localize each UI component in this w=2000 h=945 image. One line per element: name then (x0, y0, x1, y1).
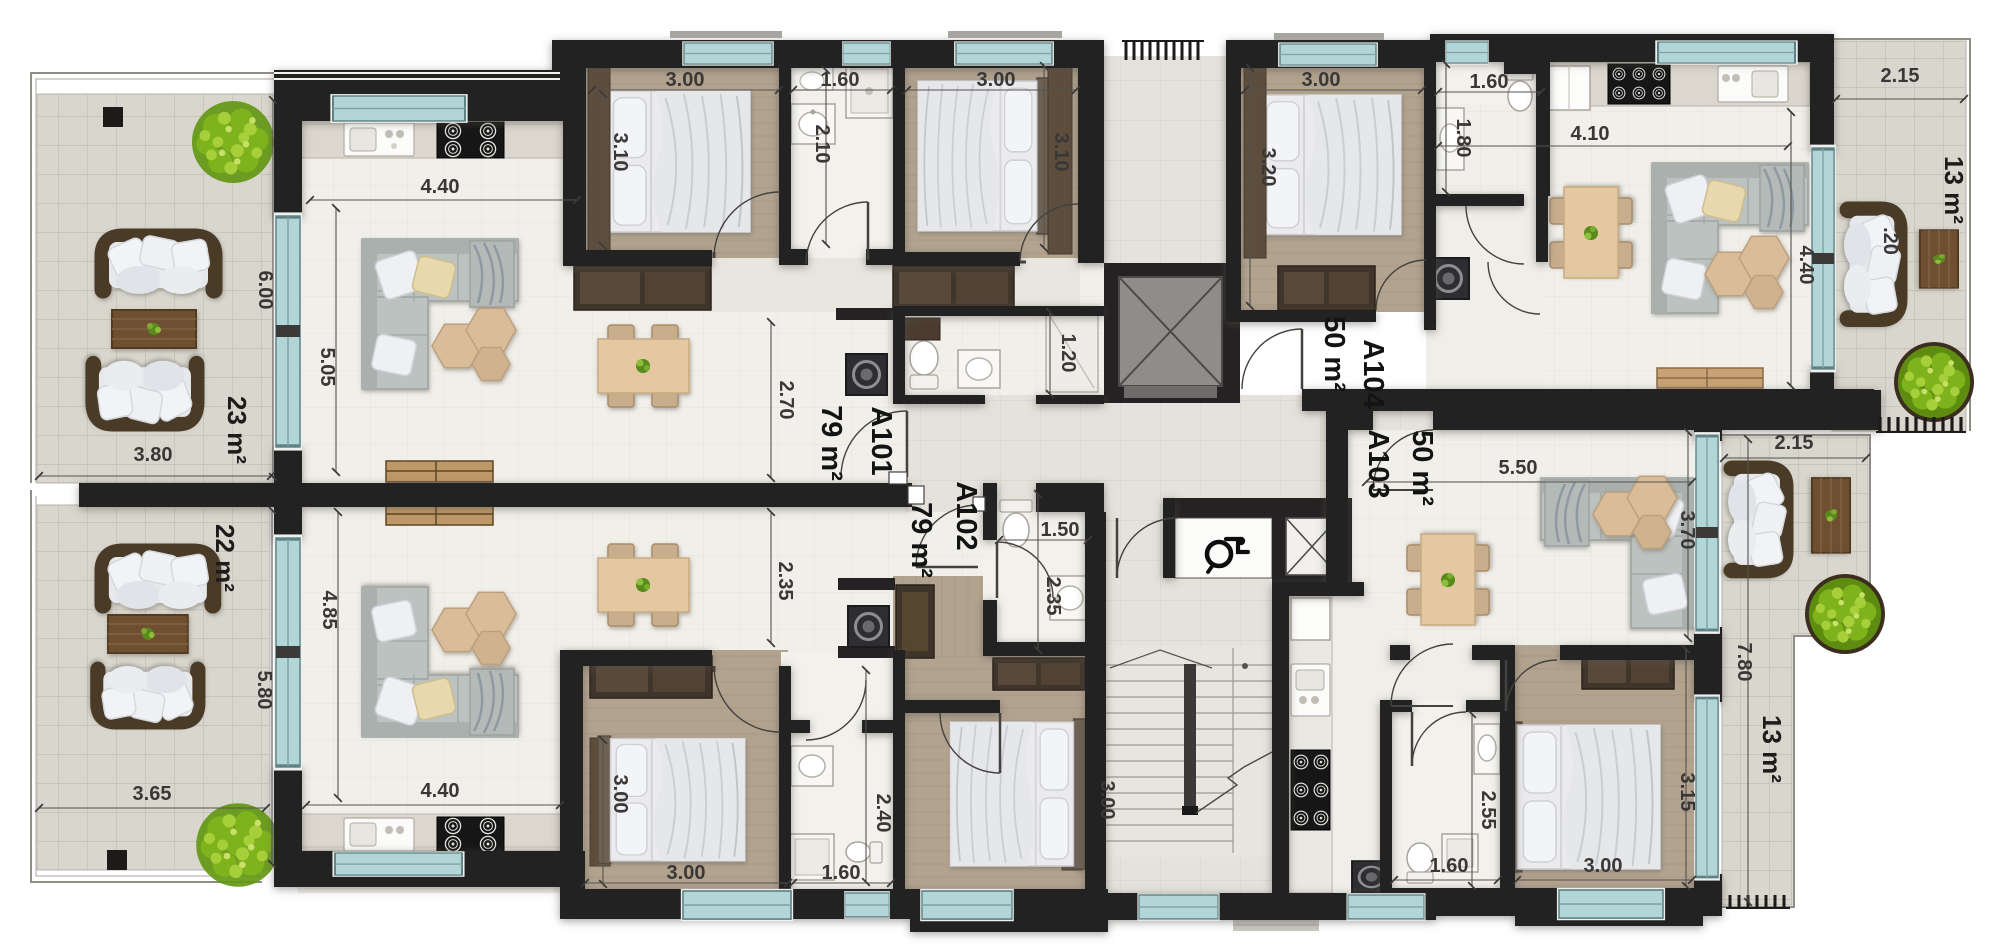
svg-text:22 m²: 22 m² (210, 524, 240, 592)
svg-text:3.00: 3.00 (667, 862, 706, 884)
svg-text:4.40: 4.40 (421, 780, 460, 802)
svg-text:3.00: 3.00 (1302, 69, 1341, 91)
svg-text:2.70: 2.70 (775, 381, 797, 420)
svg-text:.20: .20 (1879, 227, 1901, 255)
svg-text:2.40: 2.40 (872, 794, 894, 833)
svg-text:79 m²: 79 m² (815, 405, 847, 481)
svg-text:3.65: 3.65 (133, 783, 172, 805)
svg-text:79 m²: 79 m² (905, 502, 937, 578)
svg-text:5.05: 5.05 (316, 348, 338, 387)
svg-text:3.00: 3.00 (609, 775, 631, 814)
svg-text:4.10: 4.10 (1571, 123, 1610, 145)
svg-text:1.60: 1.60 (1470, 71, 1509, 93)
svg-text:A102: A102 (950, 481, 982, 550)
svg-text:3.00: 3.00 (666, 69, 705, 91)
svg-text:5.80: 5.80 (253, 671, 275, 710)
svg-text:7.80: 7.80 (1733, 643, 1755, 682)
svg-text:2.35: 2.35 (774, 562, 796, 601)
svg-text:1.20: 1.20 (1057, 334, 1079, 373)
svg-text:2.10: 2.10 (811, 125, 833, 164)
svg-text:2.35: 2.35 (1042, 577, 1064, 616)
svg-text:3.15: 3.15 (1676, 773, 1698, 812)
svg-text:13 m²: 13 m² (1939, 156, 1969, 224)
svg-text:3.70: 3.70 (1676, 511, 1698, 550)
svg-text:A101: A101 (865, 406, 897, 475)
svg-text:1.50: 1.50 (1041, 519, 1080, 541)
svg-text:2.15: 2.15 (1881, 65, 1920, 87)
svg-text:3.00: 3.00 (1096, 781, 1118, 820)
svg-text:1.60: 1.60 (821, 69, 860, 91)
svg-text:A103: A103 (1362, 429, 1394, 498)
svg-text:A104: A104 (1357, 339, 1389, 408)
svg-text:3.00: 3.00 (1584, 855, 1623, 877)
svg-text:23 m²: 23 m² (222, 396, 252, 464)
svg-text:3.00: 3.00 (977, 69, 1016, 91)
svg-text:13 m²: 13 m² (1757, 715, 1787, 783)
svg-text:3.20: 3.20 (1257, 148, 1279, 187)
svg-text:4.40: 4.40 (1795, 246, 1817, 285)
svg-text:2.55: 2.55 (1477, 791, 1499, 830)
svg-text:4.40: 4.40 (421, 176, 460, 198)
svg-text:3.80: 3.80 (134, 444, 173, 466)
svg-text:1.80: 1.80 (1452, 119, 1474, 158)
svg-text:3.10: 3.10 (609, 133, 631, 172)
svg-text:1.60: 1.60 (1430, 855, 1469, 877)
svg-text:5.50: 5.50 (1499, 457, 1538, 479)
svg-text:3.10: 3.10 (1050, 133, 1072, 172)
svg-text:4.85: 4.85 (318, 591, 340, 630)
svg-text:50 m²: 50 m² (1318, 316, 1350, 392)
svg-text:2.15: 2.15 (1775, 432, 1814, 454)
svg-text:6.00: 6.00 (254, 271, 276, 310)
svg-text:1.60: 1.60 (822, 862, 861, 884)
svg-text:50 m²: 50 m² (1406, 430, 1438, 506)
